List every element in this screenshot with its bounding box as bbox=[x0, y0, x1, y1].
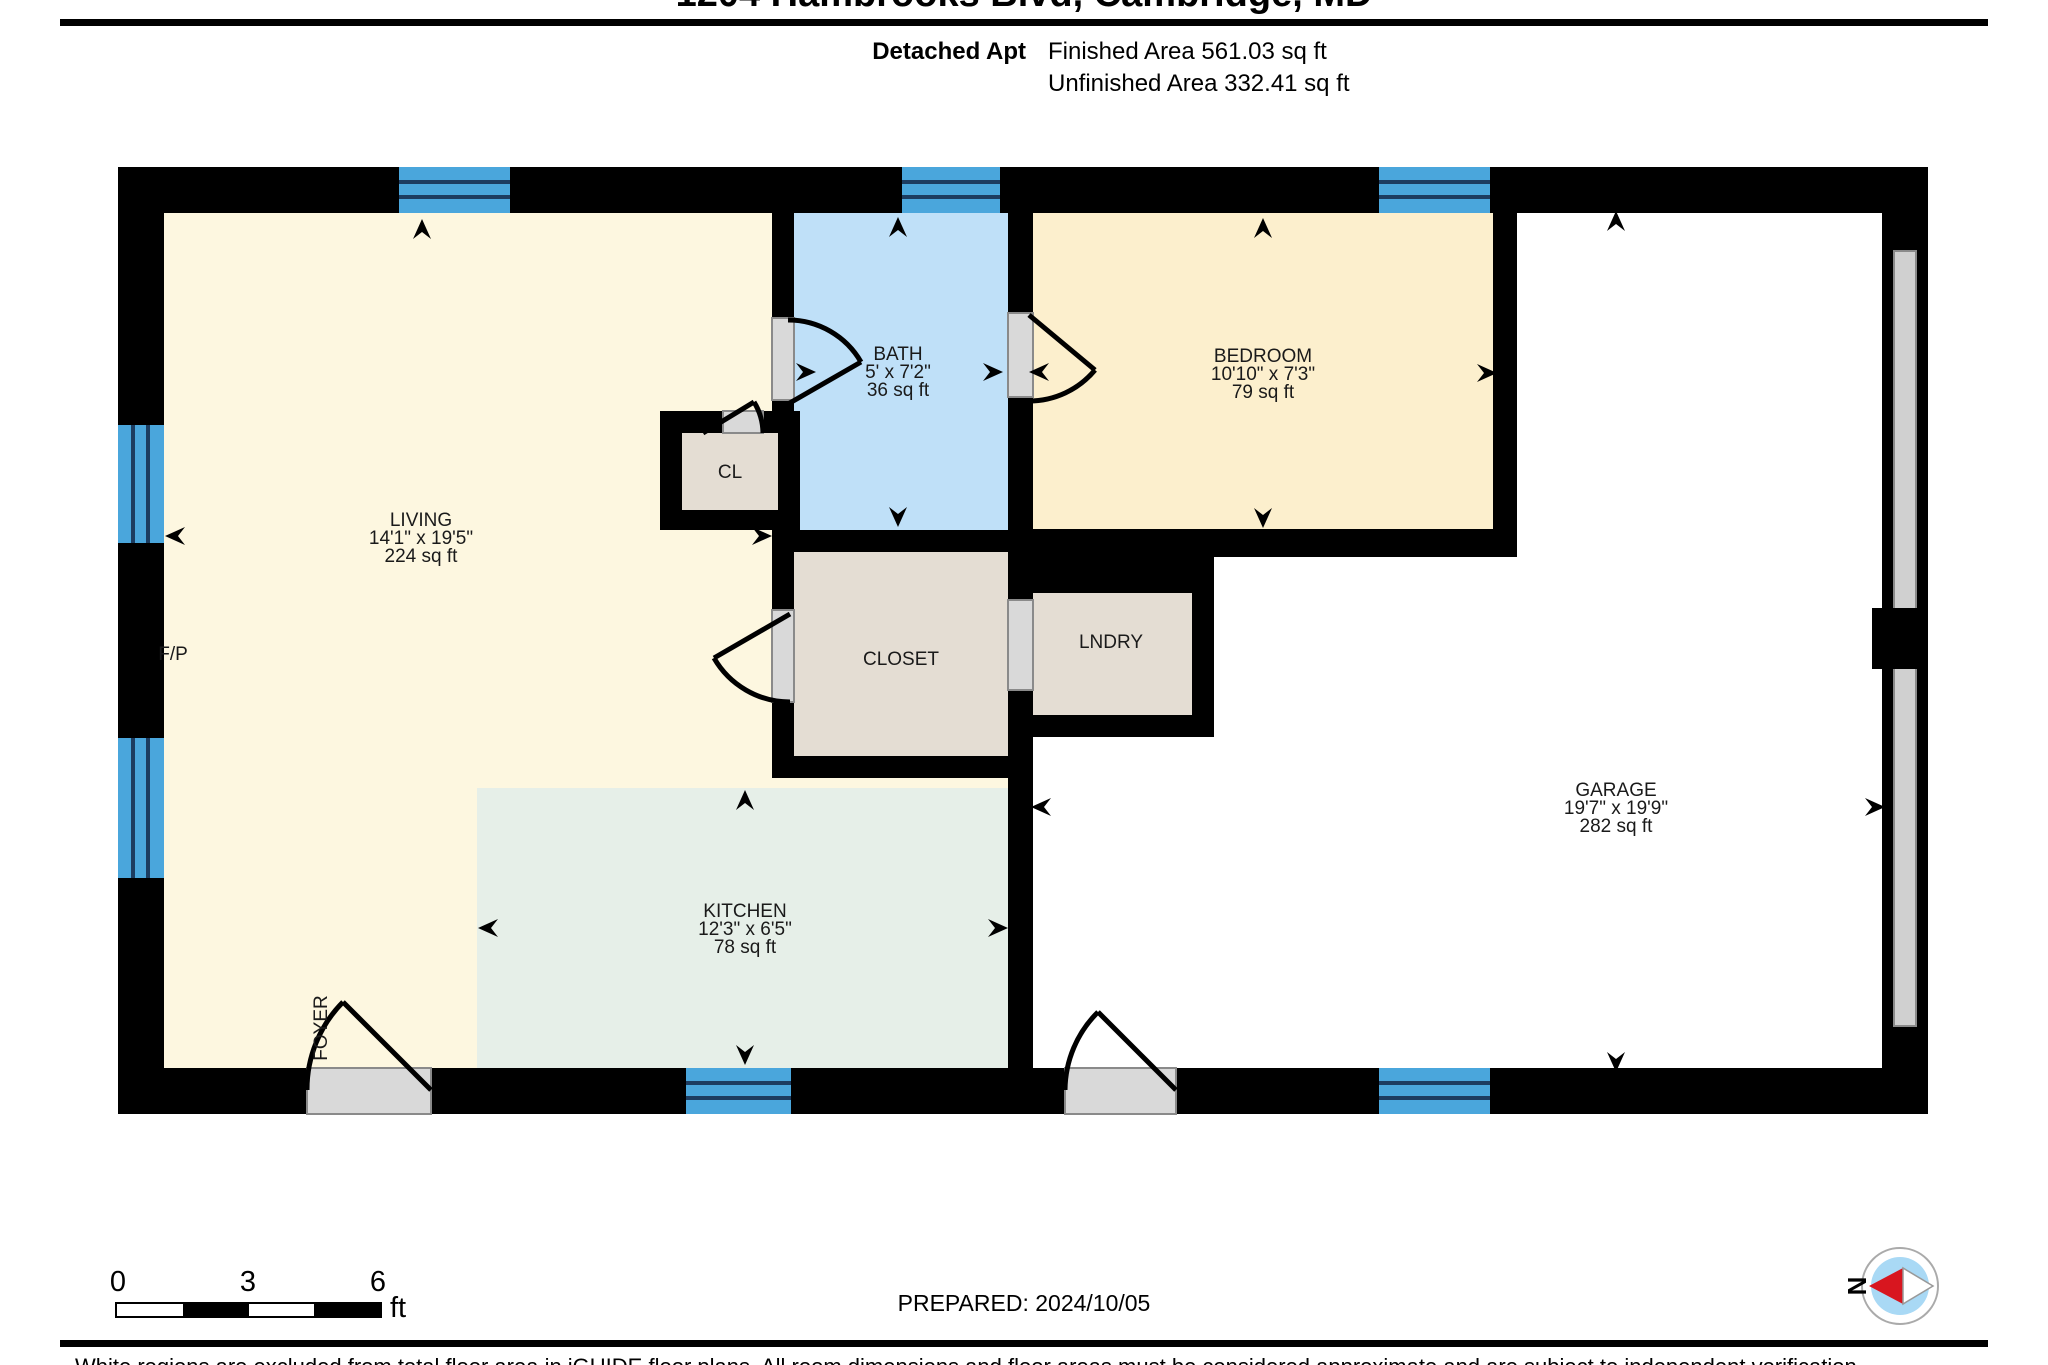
prepared-date: PREPARED: 2024/10/05 bbox=[0, 1290, 2048, 1317]
window-living-left-lower bbox=[118, 738, 164, 878]
closet-laundry-opening bbox=[1008, 600, 1033, 690]
window-kitchen-bottom bbox=[686, 1068, 791, 1114]
bath-area: 36 sq ft bbox=[867, 380, 930, 401]
footer-divider bbox=[60, 1340, 1988, 1347]
fireplace-label: F/P bbox=[158, 644, 188, 665]
compass-north-label: N bbox=[1845, 1277, 1872, 1296]
bedroom-door-sill bbox=[1008, 313, 1033, 397]
bath-door-sill bbox=[772, 318, 794, 400]
foyer-label: FOYER bbox=[311, 995, 332, 1060]
closet-label: CLOSET bbox=[863, 649, 939, 670]
window-bedroom-top bbox=[1379, 167, 1490, 213]
right-wall-pier bbox=[1872, 608, 1928, 669]
window-bath-top bbox=[902, 167, 1000, 213]
laundry-label: LNDRY bbox=[1079, 632, 1143, 653]
disclaimer-text: White regions are excluded from total fl… bbox=[75, 1354, 1975, 1365]
kitchen-area: 78 sq ft bbox=[714, 937, 777, 958]
window-living-left-upper bbox=[118, 425, 164, 543]
garage-area: 282 sq ft bbox=[1580, 816, 1654, 837]
window-garage-bottom bbox=[1379, 1068, 1490, 1114]
room-laundry bbox=[1033, 593, 1192, 715]
living-area: 224 sq ft bbox=[385, 546, 459, 567]
floorplan-drawing: LIVING 14'1" x 19'5" 224 sq ft BATH 5' x… bbox=[0, 0, 2048, 1365]
window-living-top bbox=[399, 167, 510, 213]
bedroom-area: 79 sq ft bbox=[1232, 382, 1295, 403]
cl-label: CL bbox=[718, 462, 742, 483]
floorplan-page: 1204 Hambrooks Blvd, Cambridge, MD Detac… bbox=[0, 0, 2048, 1365]
compass: N bbox=[1845, 1238, 1955, 1338]
